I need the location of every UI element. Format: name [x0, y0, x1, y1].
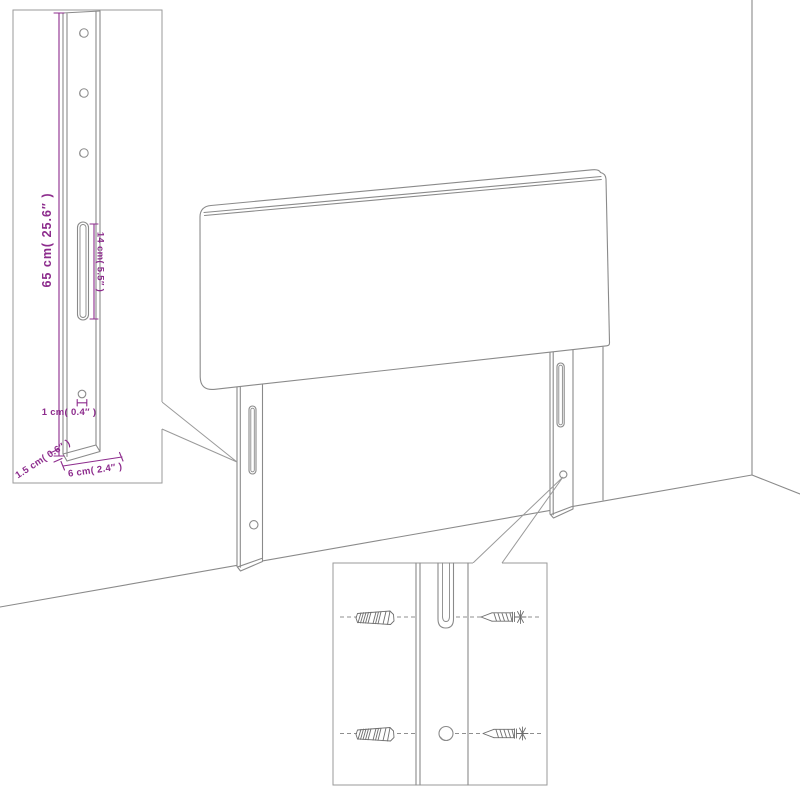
- dimension-height-label: 65 cm( 25.6″ ): [40, 192, 54, 287]
- leg-detail-leaders: [162, 402, 237, 462]
- assembly-diagram: 65 cm( 25.6″ ) 14 cm( 5.5″ ) 1 cm( 0.4″ …: [0, 0, 800, 800]
- floor-line-right: [752, 475, 800, 494]
- leg-detail-inset: 65 cm( 25.6″ ) 14 cm( 5.5″ ) 1 cm( 0.4″ …: [13, 10, 162, 483]
- right-leg: [550, 345, 573, 518]
- headboard-panel: [200, 170, 610, 390]
- callout-leader-lines: [162, 402, 563, 563]
- left-leg: [237, 382, 263, 571]
- assembly-diagram-page: 65 cm( 25.6″ ) 14 cm( 5.5″ ) 1 cm( 0.4″ …: [0, 0, 800, 800]
- dimension-slot-label: 14 cm( 5.5″ ): [95, 232, 106, 292]
- mounting-detail-inset: [333, 563, 547, 785]
- dimension-hole-label: 1 cm( 0.4″ ): [42, 407, 97, 418]
- mounting-detail-leaders: [473, 477, 563, 563]
